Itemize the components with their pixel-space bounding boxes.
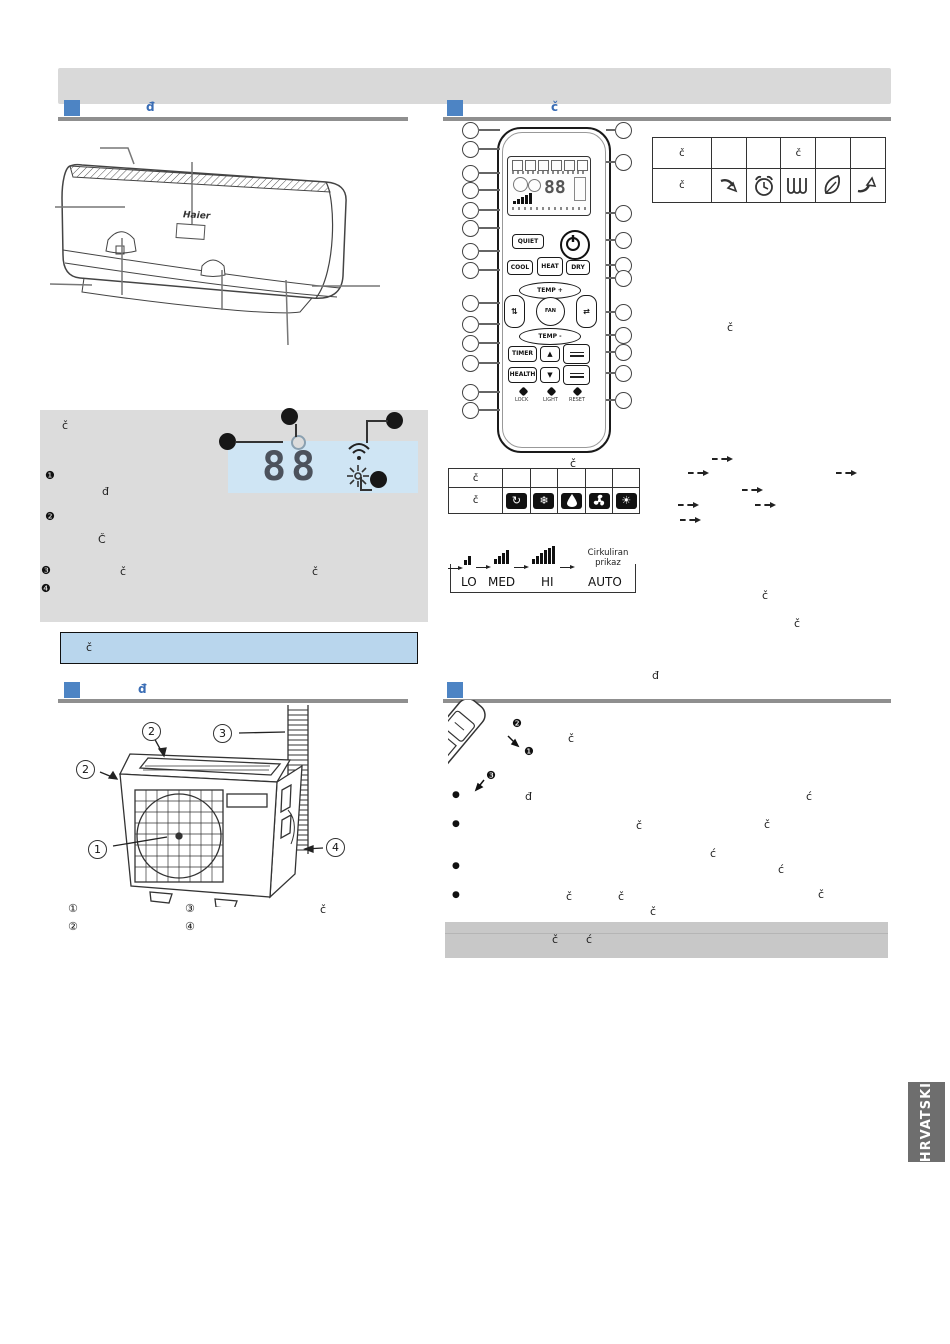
health-leaf-icon [822, 174, 844, 198]
mode-table-header: č [449, 469, 503, 487]
display-panel-title: č [62, 420, 68, 431]
remote-callout-circle [615, 154, 632, 171]
note-banner [445, 922, 888, 958]
bullet-char: č [636, 820, 642, 831]
dashed-arrow-icon [742, 489, 757, 491]
section-outdoor-square [64, 682, 80, 698]
remote-callout-circle [615, 205, 632, 222]
swing-up-arrow-icon [856, 176, 880, 196]
mode-table: č č ↻ ❄ ☀ [448, 468, 640, 514]
bullet-char: č [566, 891, 572, 902]
remote-callout-circle [615, 327, 632, 344]
stray-char: đ [652, 670, 659, 681]
remote-callout-circle [462, 335, 479, 352]
outdoor-callout-4: 4 [326, 838, 345, 857]
display-indicator-circle [291, 435, 306, 450]
quiet-button: QUIET [512, 234, 544, 249]
blue-note-banner [60, 632, 418, 664]
bullet-char: ć [710, 848, 716, 859]
bullet-char: č [818, 889, 824, 900]
legend-item-1: ① [68, 903, 78, 914]
legend-item-3: ③ [185, 903, 195, 914]
bullet-char: ć [778, 864, 784, 875]
battery-step-2: ❷ [512, 718, 522, 729]
dashed-arrow-icon [678, 504, 693, 506]
battery-step-1: ❶ [524, 746, 534, 757]
section-outdoor-title: đ [138, 683, 147, 695]
stray-char: č [794, 618, 800, 629]
panel-bullet-3: ❸ [41, 565, 51, 576]
swing-right-button: ⇄ [576, 295, 597, 328]
dashed-arrow-icon [680, 519, 695, 521]
remote-callout-circle [462, 295, 479, 312]
bullet-char: č [618, 891, 624, 902]
dry-button: DRY [566, 260, 590, 275]
battery-step-3: ❸ [486, 770, 496, 781]
remote-callout-circle [462, 182, 479, 199]
up-arrow-button: ▲ [540, 346, 560, 362]
section-indoor-title: đ [146, 101, 155, 113]
temp-down-button: TEMP - [519, 328, 581, 345]
bullet-marker: ● [452, 891, 460, 900]
outdoor-callout-1: 1 [88, 840, 107, 859]
panel-char: č [120, 566, 126, 577]
remote-callout-circle [615, 270, 632, 287]
section-remote-title: č [551, 101, 558, 113]
remote-callout-circle [615, 392, 632, 409]
mode-table-row-label: č [449, 488, 503, 513]
legend-item-2: ② [68, 921, 78, 932]
lock-label: LOCK [515, 398, 528, 403]
fan-label-med: MED [488, 575, 515, 589]
heat-button: HEAT [537, 257, 563, 276]
remote-callout-circle [462, 316, 479, 333]
sleep-button [563, 365, 590, 385]
dashed-arrow-icon [712, 458, 727, 460]
heater-coil-icon [786, 176, 810, 196]
down-arrow-button: ▼ [540, 367, 560, 383]
indoor-unit-drawing [50, 140, 390, 370]
indoor-brand-logo: Haier [183, 210, 211, 221]
fan-label-auto: AUTO [588, 575, 622, 589]
dashed-arrow-icon [836, 472, 851, 474]
bullet-char: č [764, 819, 770, 830]
language-tab: HRVATSKI [908, 1082, 945, 1162]
cool-mode-icon: ❄ [533, 493, 554, 509]
remote-lcd: 88 [507, 156, 591, 216]
remote-callout-circle [615, 365, 632, 382]
fan-label-hi: HI [541, 575, 554, 589]
cool-button: COOL [507, 260, 533, 275]
indoor-led-display [228, 441, 418, 493]
battery-install-drawing [448, 700, 560, 802]
display-callout-dot [219, 433, 236, 450]
section-remote-square [447, 100, 463, 116]
bullet-marker: ● [452, 791, 460, 800]
language-tab-label: HRVATSKI [919, 1082, 934, 1162]
reset-label: RESET [569, 398, 585, 403]
manual-page: đ č Haier č [0, 0, 950, 1344]
note-char: č [552, 934, 558, 945]
remote-callout-circle [615, 232, 632, 249]
timer-clock-icon [752, 174, 776, 198]
dashed-arrow-icon [755, 504, 770, 506]
fan-mode-icon [589, 493, 610, 509]
display-callout-dot [370, 471, 387, 488]
display-callout-dot [386, 412, 403, 429]
fan-button-label: FAN [545, 309, 556, 314]
panel-char: đ [102, 486, 109, 497]
bullet-char: đ [525, 791, 532, 802]
power-icon [562, 232, 584, 254]
panel-bullet-2: ❷ [45, 511, 55, 522]
outdoor-callout-2-top: 2 [142, 722, 161, 741]
section-remote-rule [443, 117, 891, 121]
dry-mode-icon [561, 493, 582, 509]
bullet-marker: ● [452, 862, 460, 871]
legend-char: č [320, 904, 326, 915]
note-char: ć [586, 934, 592, 945]
remote-callout-circle [462, 220, 479, 237]
remote-callout-circle [462, 122, 479, 139]
panel-bullet-1: ❶ [45, 470, 55, 481]
remote-callout-circle [462, 355, 479, 372]
display-callout-dot [281, 408, 298, 425]
section-battery-square [447, 682, 463, 698]
remote-callout-circle [462, 165, 479, 182]
heat-mode-icon: ☀ [616, 493, 637, 509]
panel-char: č [312, 566, 318, 577]
section-indoor-square [64, 100, 80, 116]
airflow-header-4: č [781, 138, 816, 168]
bullet-char: č [650, 906, 656, 917]
remote-callout-circle [462, 262, 479, 279]
timer-button: TIMER [508, 346, 537, 362]
auto-circulation-caption: Cirkuliran prikaz [578, 548, 638, 568]
outdoor-callout-2-left: 2 [76, 760, 95, 779]
health-button: HEALTH [508, 367, 537, 383]
swing-left-button: ⇅ [504, 295, 525, 328]
remote-callout-circle [462, 141, 479, 158]
airflow-table: č č č [652, 137, 886, 203]
display-digits: 88 [262, 444, 320, 490]
top-banner [58, 68, 891, 104]
outdoor-callout-3: 3 [213, 724, 232, 743]
dashed-arrow-icon [688, 472, 703, 474]
remote-callout-circle [615, 304, 632, 321]
legend-item-4: ④ [185, 921, 195, 932]
bullet-char: ć [806, 791, 812, 802]
swing-down-arrow-icon [718, 175, 740, 197]
panel-bullet-4: ❹ [41, 583, 51, 594]
health-sparkle-icon [345, 463, 371, 489]
panel-char: Č [98, 534, 106, 545]
fan-label-lo: LO [461, 575, 477, 589]
wifi-icon [346, 441, 372, 461]
section-indoor-rule [58, 117, 408, 121]
auto-mode-icon: ↻ [506, 493, 527, 509]
fan-button: FAN [536, 297, 565, 326]
airflow-header-1: č [653, 138, 712, 168]
blue-banner-char: č [86, 642, 92, 653]
remote-callout-circle [615, 344, 632, 361]
remote-callout-circle [462, 243, 479, 260]
remote-callout-circle [462, 384, 479, 401]
remote-callout-circle [615, 122, 632, 139]
stray-char: č [762, 590, 768, 601]
remote-callout-circle [462, 402, 479, 419]
indoor-display-window [176, 223, 206, 240]
battery-caption-char: č [568, 733, 574, 744]
bullet-marker: ● [452, 820, 460, 829]
airflow-row-label: č [653, 169, 712, 202]
light-label: LIGHT [543, 398, 558, 403]
fan-speed-diagram: Cirkuliran prikaz LO MED HI AUTO [448, 546, 640, 594]
power-button [560, 230, 590, 260]
extra-function-button [563, 344, 590, 364]
stray-char: č [727, 322, 733, 333]
remote-callout-circle [462, 202, 479, 219]
